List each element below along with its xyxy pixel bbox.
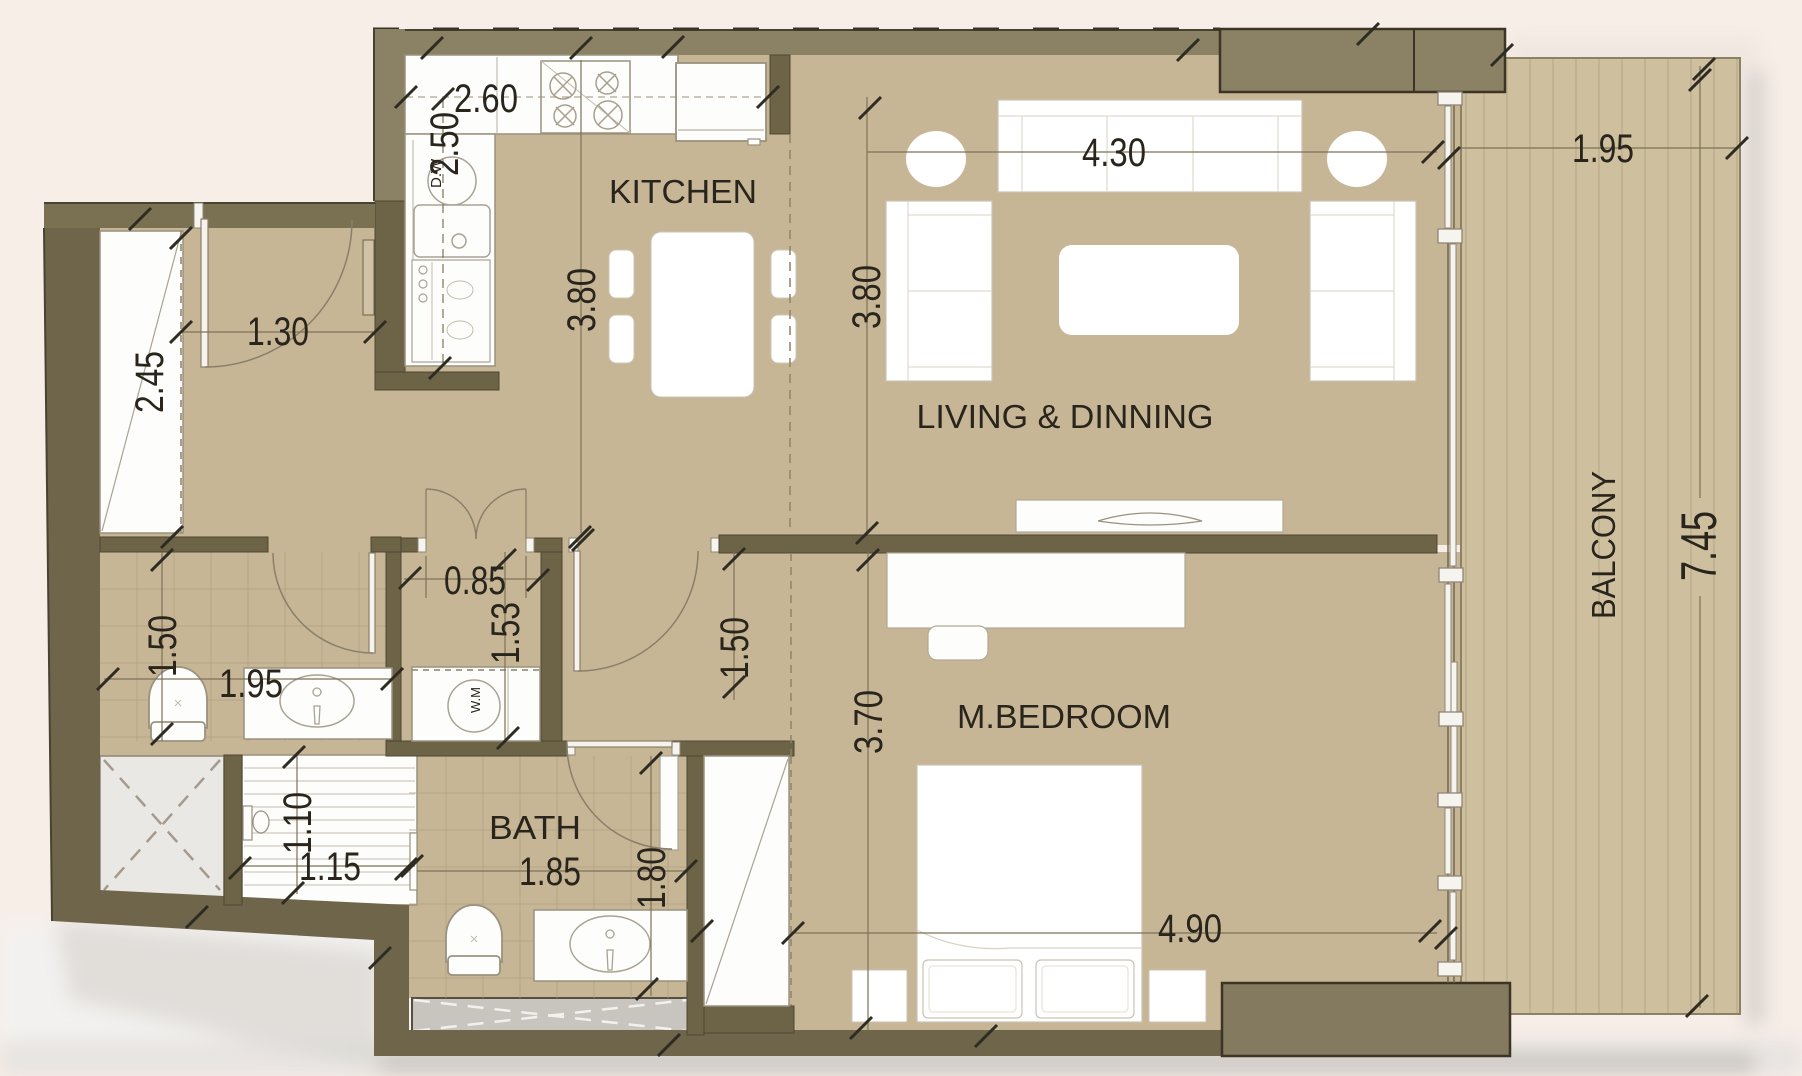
svg-text:1.85: 1.85 xyxy=(519,850,581,894)
svg-text:3.80: 3.80 xyxy=(560,268,604,332)
svg-text:1.30: 1.30 xyxy=(247,310,309,354)
svg-text:1.95: 1.95 xyxy=(219,662,283,706)
svg-text:4.90: 4.90 xyxy=(1158,907,1222,951)
svg-text:4.30: 4.30 xyxy=(1082,131,1146,175)
svg-text:1.50: 1.50 xyxy=(141,615,185,677)
svg-text:BALCONY: BALCONY xyxy=(1585,471,1622,619)
svg-text:2.45: 2.45 xyxy=(128,351,172,413)
svg-text:W.M: W.M xyxy=(468,687,483,713)
svg-text:LIVING & DINNING: LIVING & DINNING xyxy=(917,398,1214,435)
svg-text:1.10: 1.10 xyxy=(276,792,320,854)
svg-text:M.BEDROOM: M.BEDROOM xyxy=(957,698,1171,735)
svg-text:BATH: BATH xyxy=(489,809,581,846)
svg-text:2.50: 2.50 xyxy=(423,112,467,176)
svg-text:0.85: 0.85 xyxy=(444,559,506,603)
svg-text:3.80: 3.80 xyxy=(845,265,889,329)
svg-text:1.80: 1.80 xyxy=(630,847,674,909)
svg-text:7.45: 7.45 xyxy=(1671,511,1727,581)
svg-text:3.70: 3.70 xyxy=(847,690,891,754)
svg-text:1.95: 1.95 xyxy=(1572,127,1634,171)
svg-text:1.53: 1.53 xyxy=(484,602,528,664)
svg-text:1.50: 1.50 xyxy=(713,617,757,679)
svg-text:KITCHEN: KITCHEN xyxy=(609,173,757,210)
